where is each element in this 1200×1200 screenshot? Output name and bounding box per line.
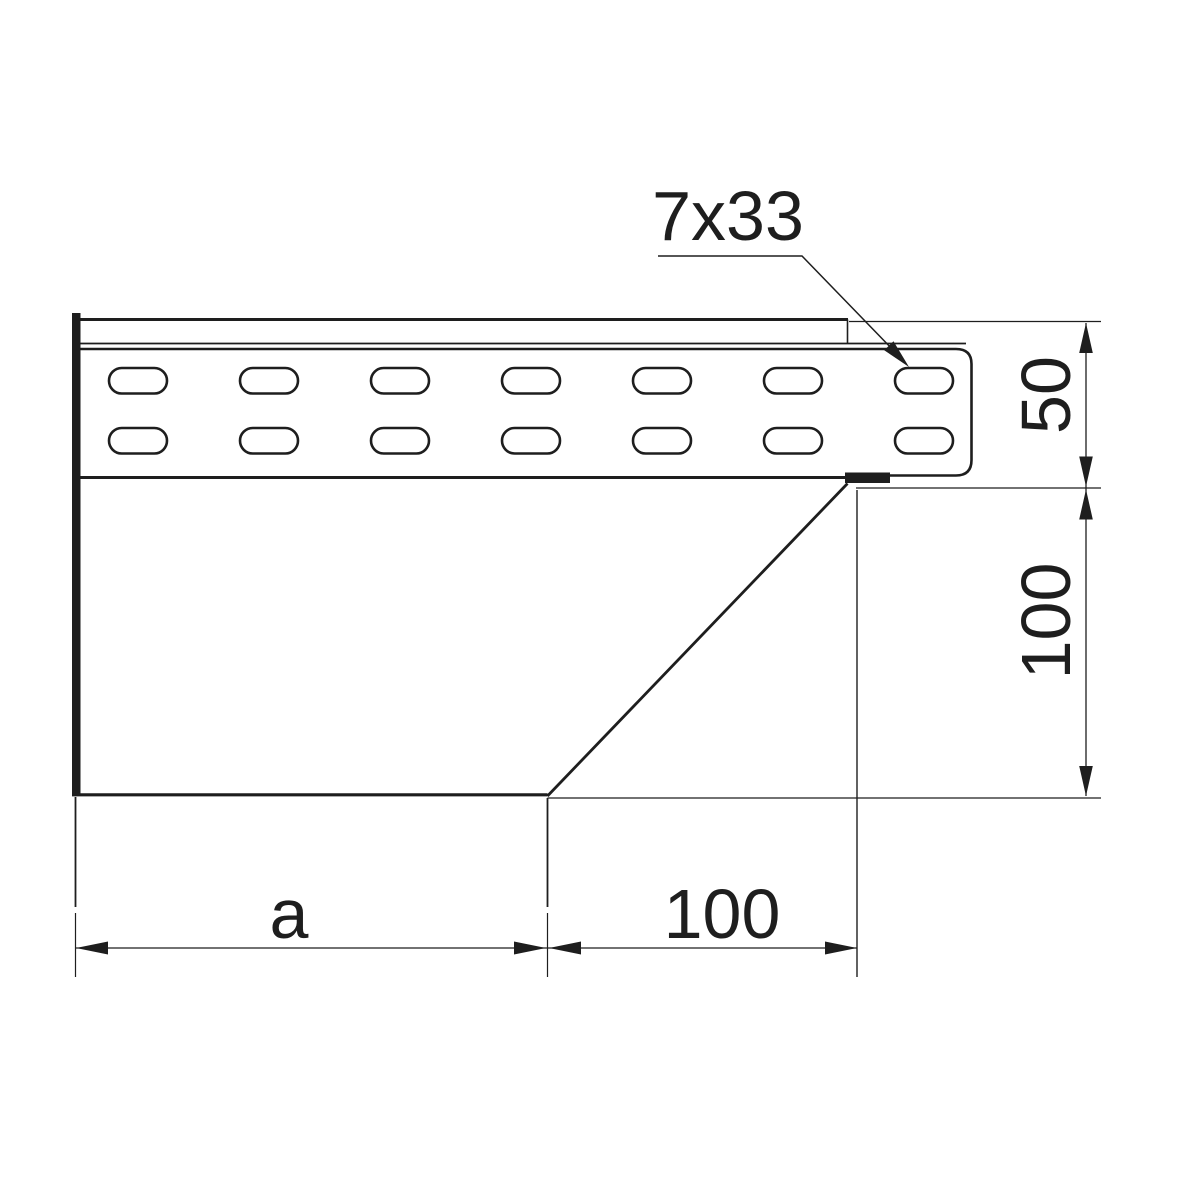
slot-hole [502, 428, 560, 454]
slot-hole [371, 428, 429, 454]
rail-height-label: 50 [1007, 356, 1085, 434]
arrow-down-icon [1079, 457, 1093, 487]
slot-hole [764, 368, 822, 394]
arrow-up-icon [1079, 490, 1093, 520]
body-height-label: 100 [1007, 563, 1085, 680]
slot-hole [109, 368, 167, 394]
slot-size-label: 7x33 [652, 177, 804, 255]
slot-hole [895, 428, 953, 454]
slot-hole [371, 368, 429, 394]
slot-hole [240, 368, 298, 394]
rail-slots [109, 368, 953, 454]
arrow-right-icon [514, 942, 546, 955]
arrow-up-icon [1079, 323, 1093, 353]
slot-hole [633, 428, 691, 454]
taper-length-label: 100 [664, 875, 781, 953]
slot-hole [502, 368, 560, 394]
slot-hole [895, 368, 953, 394]
leader-line [658, 256, 895, 352]
arrow-down-icon [1079, 766, 1093, 796]
slot-hole [109, 428, 167, 454]
length-a-label: a [270, 875, 309, 953]
arrow-left-icon [76, 942, 108, 955]
joint-mark [845, 473, 890, 484]
slot-hole [240, 428, 298, 454]
slot-size-callout: 7x33 [652, 177, 909, 367]
part-outline [72, 313, 972, 796]
slot-hole [764, 428, 822, 454]
arrow-left-icon [549, 942, 581, 955]
slot-hole [633, 368, 691, 394]
part-left-edge [72, 313, 81, 795]
arrow-right-icon [825, 942, 857, 955]
taper-diagonal-edge [548, 484, 848, 797]
technical-drawing-canvas: 7x33 50 100 a 100 [0, 0, 1200, 1200]
